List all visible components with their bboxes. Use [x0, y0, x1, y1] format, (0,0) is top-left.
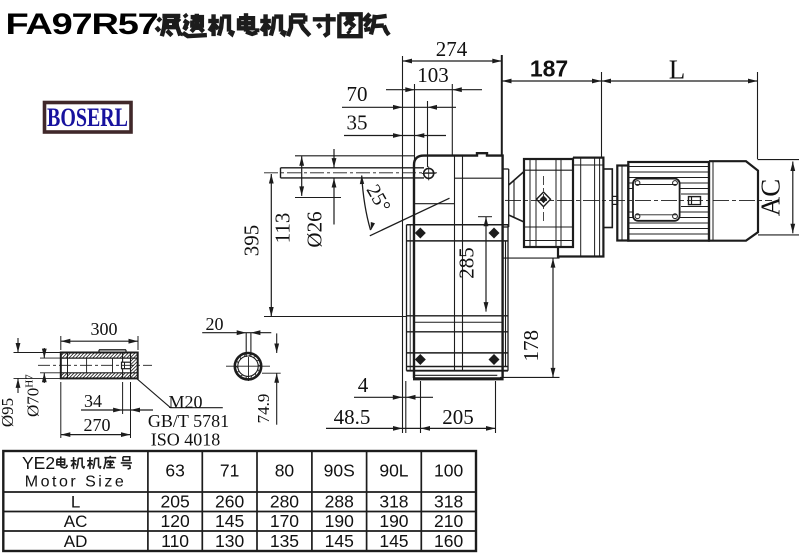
svg-text:113: 113 — [271, 213, 295, 244]
svg-text:4: 4 — [358, 373, 369, 397]
svg-text:395: 395 — [240, 225, 264, 257]
svg-text:318: 318 — [434, 492, 463, 512]
svg-text:285: 285 — [455, 247, 479, 279]
svg-text:190: 190 — [325, 511, 354, 531]
svg-text:280: 280 — [270, 492, 299, 512]
svg-text:260: 260 — [215, 492, 244, 512]
svg-text:35: 35 — [347, 111, 368, 135]
svg-text:80: 80 — [275, 461, 295, 481]
svg-text:205: 205 — [442, 405, 474, 429]
svg-text:160: 160 — [434, 531, 463, 551]
svg-text:288: 288 — [325, 492, 354, 512]
svg-text:103: 103 — [417, 63, 449, 87]
svg-text:GB/T 5781: GB/T 5781 — [148, 411, 229, 431]
svg-text:71: 71 — [220, 461, 239, 481]
svg-text:110: 110 — [161, 531, 189, 551]
svg-text:145: 145 — [325, 531, 354, 551]
svg-text:L: L — [669, 55, 686, 85]
svg-text:300: 300 — [91, 319, 118, 339]
svg-text:270: 270 — [84, 415, 111, 435]
svg-text:210: 210 — [434, 511, 463, 531]
svg-text:M20: M20 — [168, 392, 202, 412]
svg-text:AD: AD — [64, 532, 88, 551]
svg-text:135: 135 — [270, 531, 299, 551]
svg-text:ISO 4018: ISO 4018 — [151, 430, 221, 450]
svg-text:100: 100 — [434, 461, 463, 481]
svg-text:120: 120 — [160, 511, 189, 531]
svg-text:178: 178 — [519, 330, 543, 362]
svg-text:20: 20 — [206, 314, 224, 334]
svg-text:130: 130 — [215, 531, 244, 551]
svg-text:90L: 90L — [379, 461, 408, 481]
svg-text:34: 34 — [84, 391, 102, 411]
svg-text:145: 145 — [379, 531, 408, 551]
svg-text:YE2: YE2 — [22, 453, 55, 473]
svg-text:AC: AC — [64, 512, 88, 531]
svg-text:FA97R57: FA97R57 — [6, 8, 158, 41]
svg-text:BOSERL: BOSERL — [47, 102, 128, 132]
svg-text:63: 63 — [165, 461, 184, 481]
svg-text:70: 70 — [347, 82, 368, 106]
svg-text:AC: AC — [756, 179, 786, 217]
svg-text:145: 145 — [215, 511, 244, 531]
svg-text:205: 205 — [160, 492, 189, 512]
svg-text:170: 170 — [270, 511, 299, 531]
svg-text:Ø95: Ø95 — [0, 398, 17, 427]
svg-text:48.5: 48.5 — [334, 405, 371, 429]
svg-text:90S: 90S — [324, 461, 355, 481]
svg-text:190: 190 — [379, 511, 408, 531]
svg-text:Motor Size: Motor Size — [25, 474, 126, 491]
svg-text:74.9: 74.9 — [254, 394, 273, 424]
svg-text:L: L — [71, 493, 80, 512]
svg-text:Ø26: Ø26 — [303, 211, 327, 247]
svg-text:187: 187 — [530, 56, 568, 82]
svg-text:274: 274 — [436, 37, 468, 61]
svg-text:318: 318 — [379, 492, 408, 512]
